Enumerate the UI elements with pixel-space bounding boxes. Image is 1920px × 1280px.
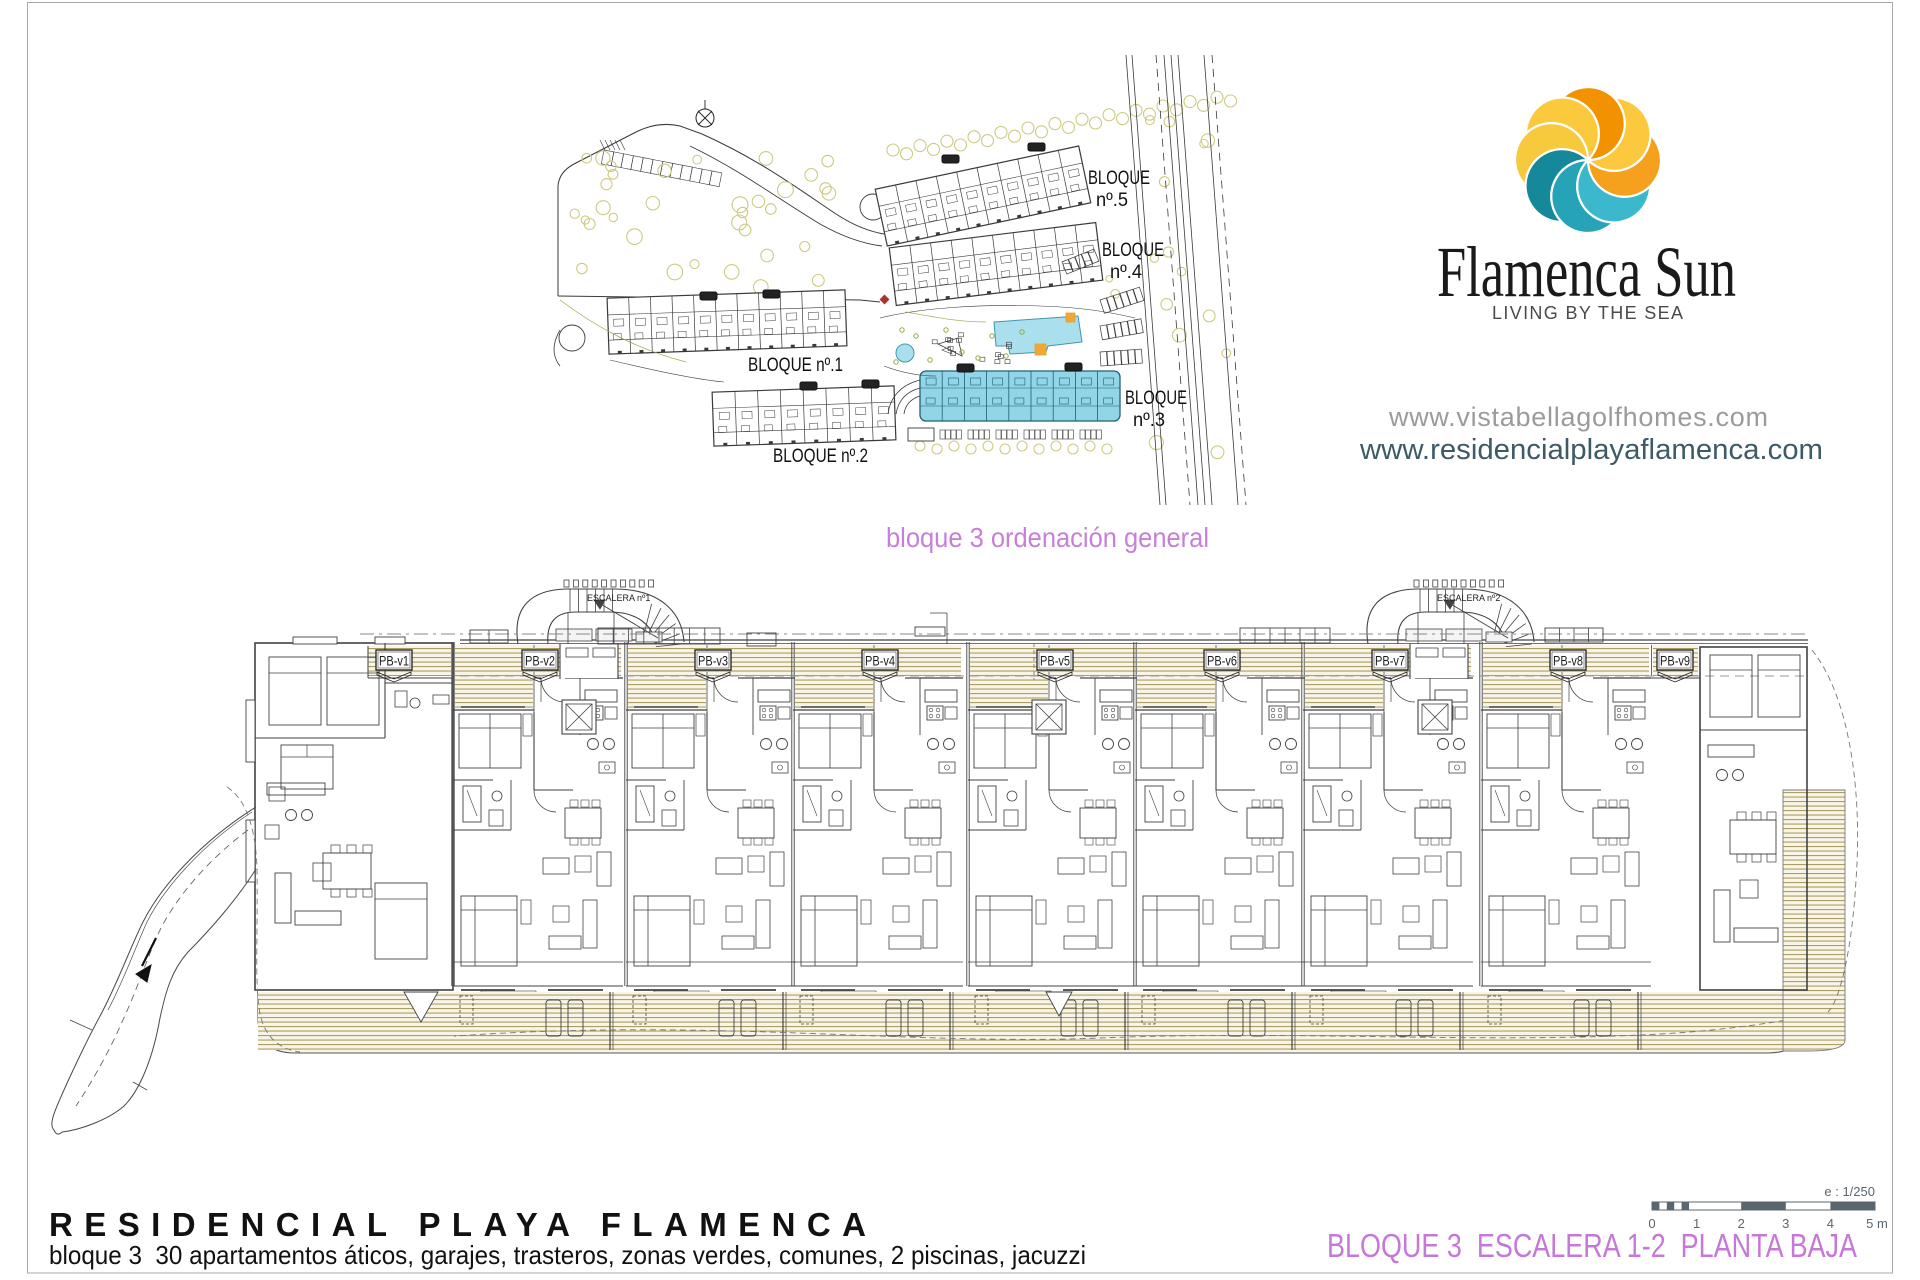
svg-text:BLOQUE: BLOQUE (1088, 168, 1150, 189)
svg-text:BLOQUE nº.1: BLOQUE nº.1 (748, 355, 843, 376)
svg-text:4: 4 (1827, 1216, 1834, 1231)
svg-text:PB-v6: PB-v6 (1207, 654, 1237, 669)
svg-text:1: 1 (1693, 1216, 1700, 1231)
svg-text:e : 1/250: e : 1/250 (1824, 1184, 1875, 1199)
svg-text:BLOQUE nº.2: BLOQUE nº.2 (773, 446, 868, 467)
svg-text:nº.4: nº.4 (1110, 262, 1142, 283)
svg-text:RESIDENCIAL PLAYA FLAMENCA: RESIDENCIAL PLAYA FLAMENCA (49, 1206, 878, 1243)
svg-text:ESCALERA nº1: ESCALERA nº1 (587, 593, 650, 603)
svg-text:PB-v2: PB-v2 (525, 654, 555, 669)
svg-text:PB-v7: PB-v7 (1375, 654, 1405, 669)
svg-text:BLOQUE 3 ESCALERA 1-2 PLANTA: BLOQUE 3 ESCALERA 1-2 PLANTA BAJA (1327, 1227, 1857, 1264)
svg-text:Flamenca Sun: Flamenca Sun (1437, 232, 1736, 312)
svg-text:PB-v3: PB-v3 (698, 654, 728, 669)
svg-text:bloque 3 ordenación general: bloque 3 ordenación general (886, 522, 1209, 553)
svg-text:nº.3: nº.3 (1133, 410, 1165, 431)
svg-text:ESCALERA nº2: ESCALERA nº2 (1437, 593, 1500, 603)
svg-text:0: 0 (1648, 1216, 1655, 1231)
svg-text:5 m: 5 m (1866, 1216, 1888, 1231)
svg-text:LIVING BY THE SEA: LIVING BY THE SEA (1492, 303, 1683, 323)
svg-text:PB-v9: PB-v9 (1660, 654, 1690, 669)
svg-text:3: 3 (1782, 1216, 1789, 1231)
svg-text:PB-v5: PB-v5 (1040, 654, 1070, 669)
svg-text:PB-v1: PB-v1 (379, 654, 409, 669)
svg-text:BLOQUE: BLOQUE (1102, 240, 1164, 261)
svg-text:bloque 3 30 apartamentos átic: bloque 3 30 apartamentos áticos, garajes… (49, 1240, 1086, 1270)
svg-text:PB-v4: PB-v4 (865, 654, 895, 669)
svg-text:BLOQUE: BLOQUE (1125, 388, 1187, 409)
svg-text:2: 2 (1738, 1216, 1745, 1231)
svg-text:PB-v8: PB-v8 (1553, 654, 1583, 669)
svg-text:www.vistabellagolfhomes.com: www.vistabellagolfhomes.com (1388, 402, 1768, 432)
svg-text:nº.5: nº.5 (1096, 190, 1128, 211)
svg-text:www.residencialplayaflamenca.c: www.residencialplayaflamenca.com (1359, 434, 1823, 466)
